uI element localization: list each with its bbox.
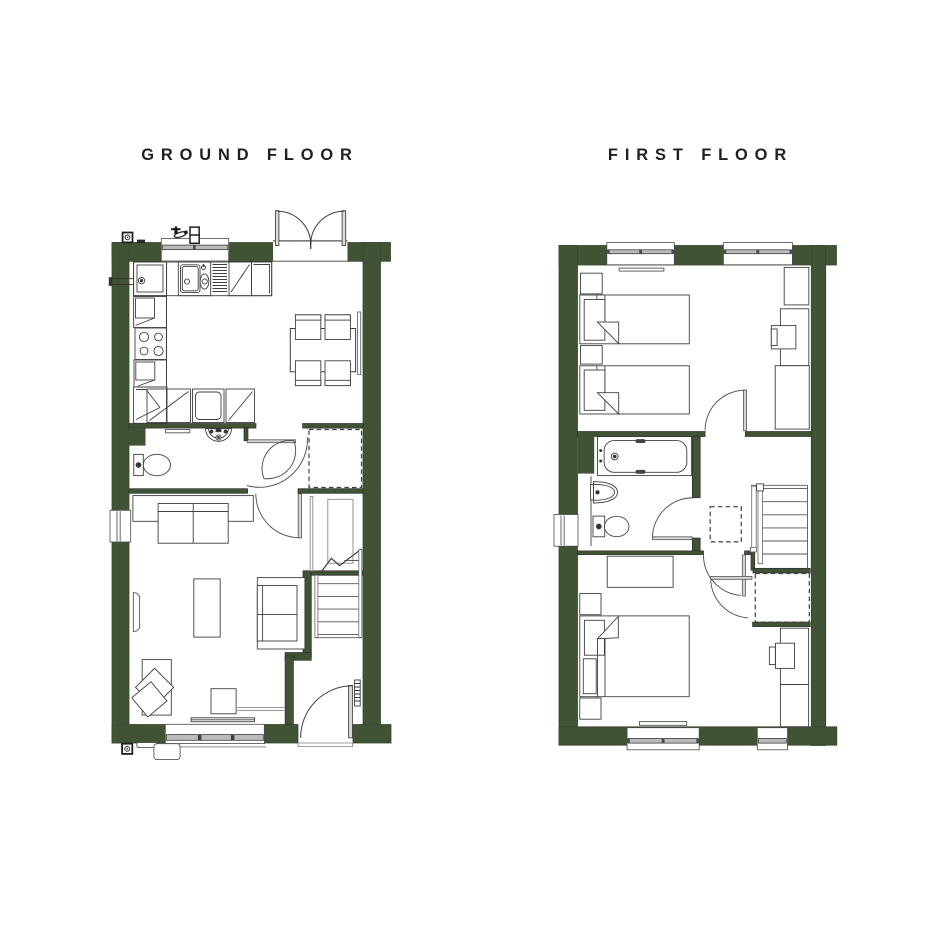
svg-text:FIRST FLOOR: FIRST FLOOR bbox=[608, 146, 793, 164]
svg-text:GROUND FLOOR: GROUND FLOOR bbox=[141, 146, 359, 164]
